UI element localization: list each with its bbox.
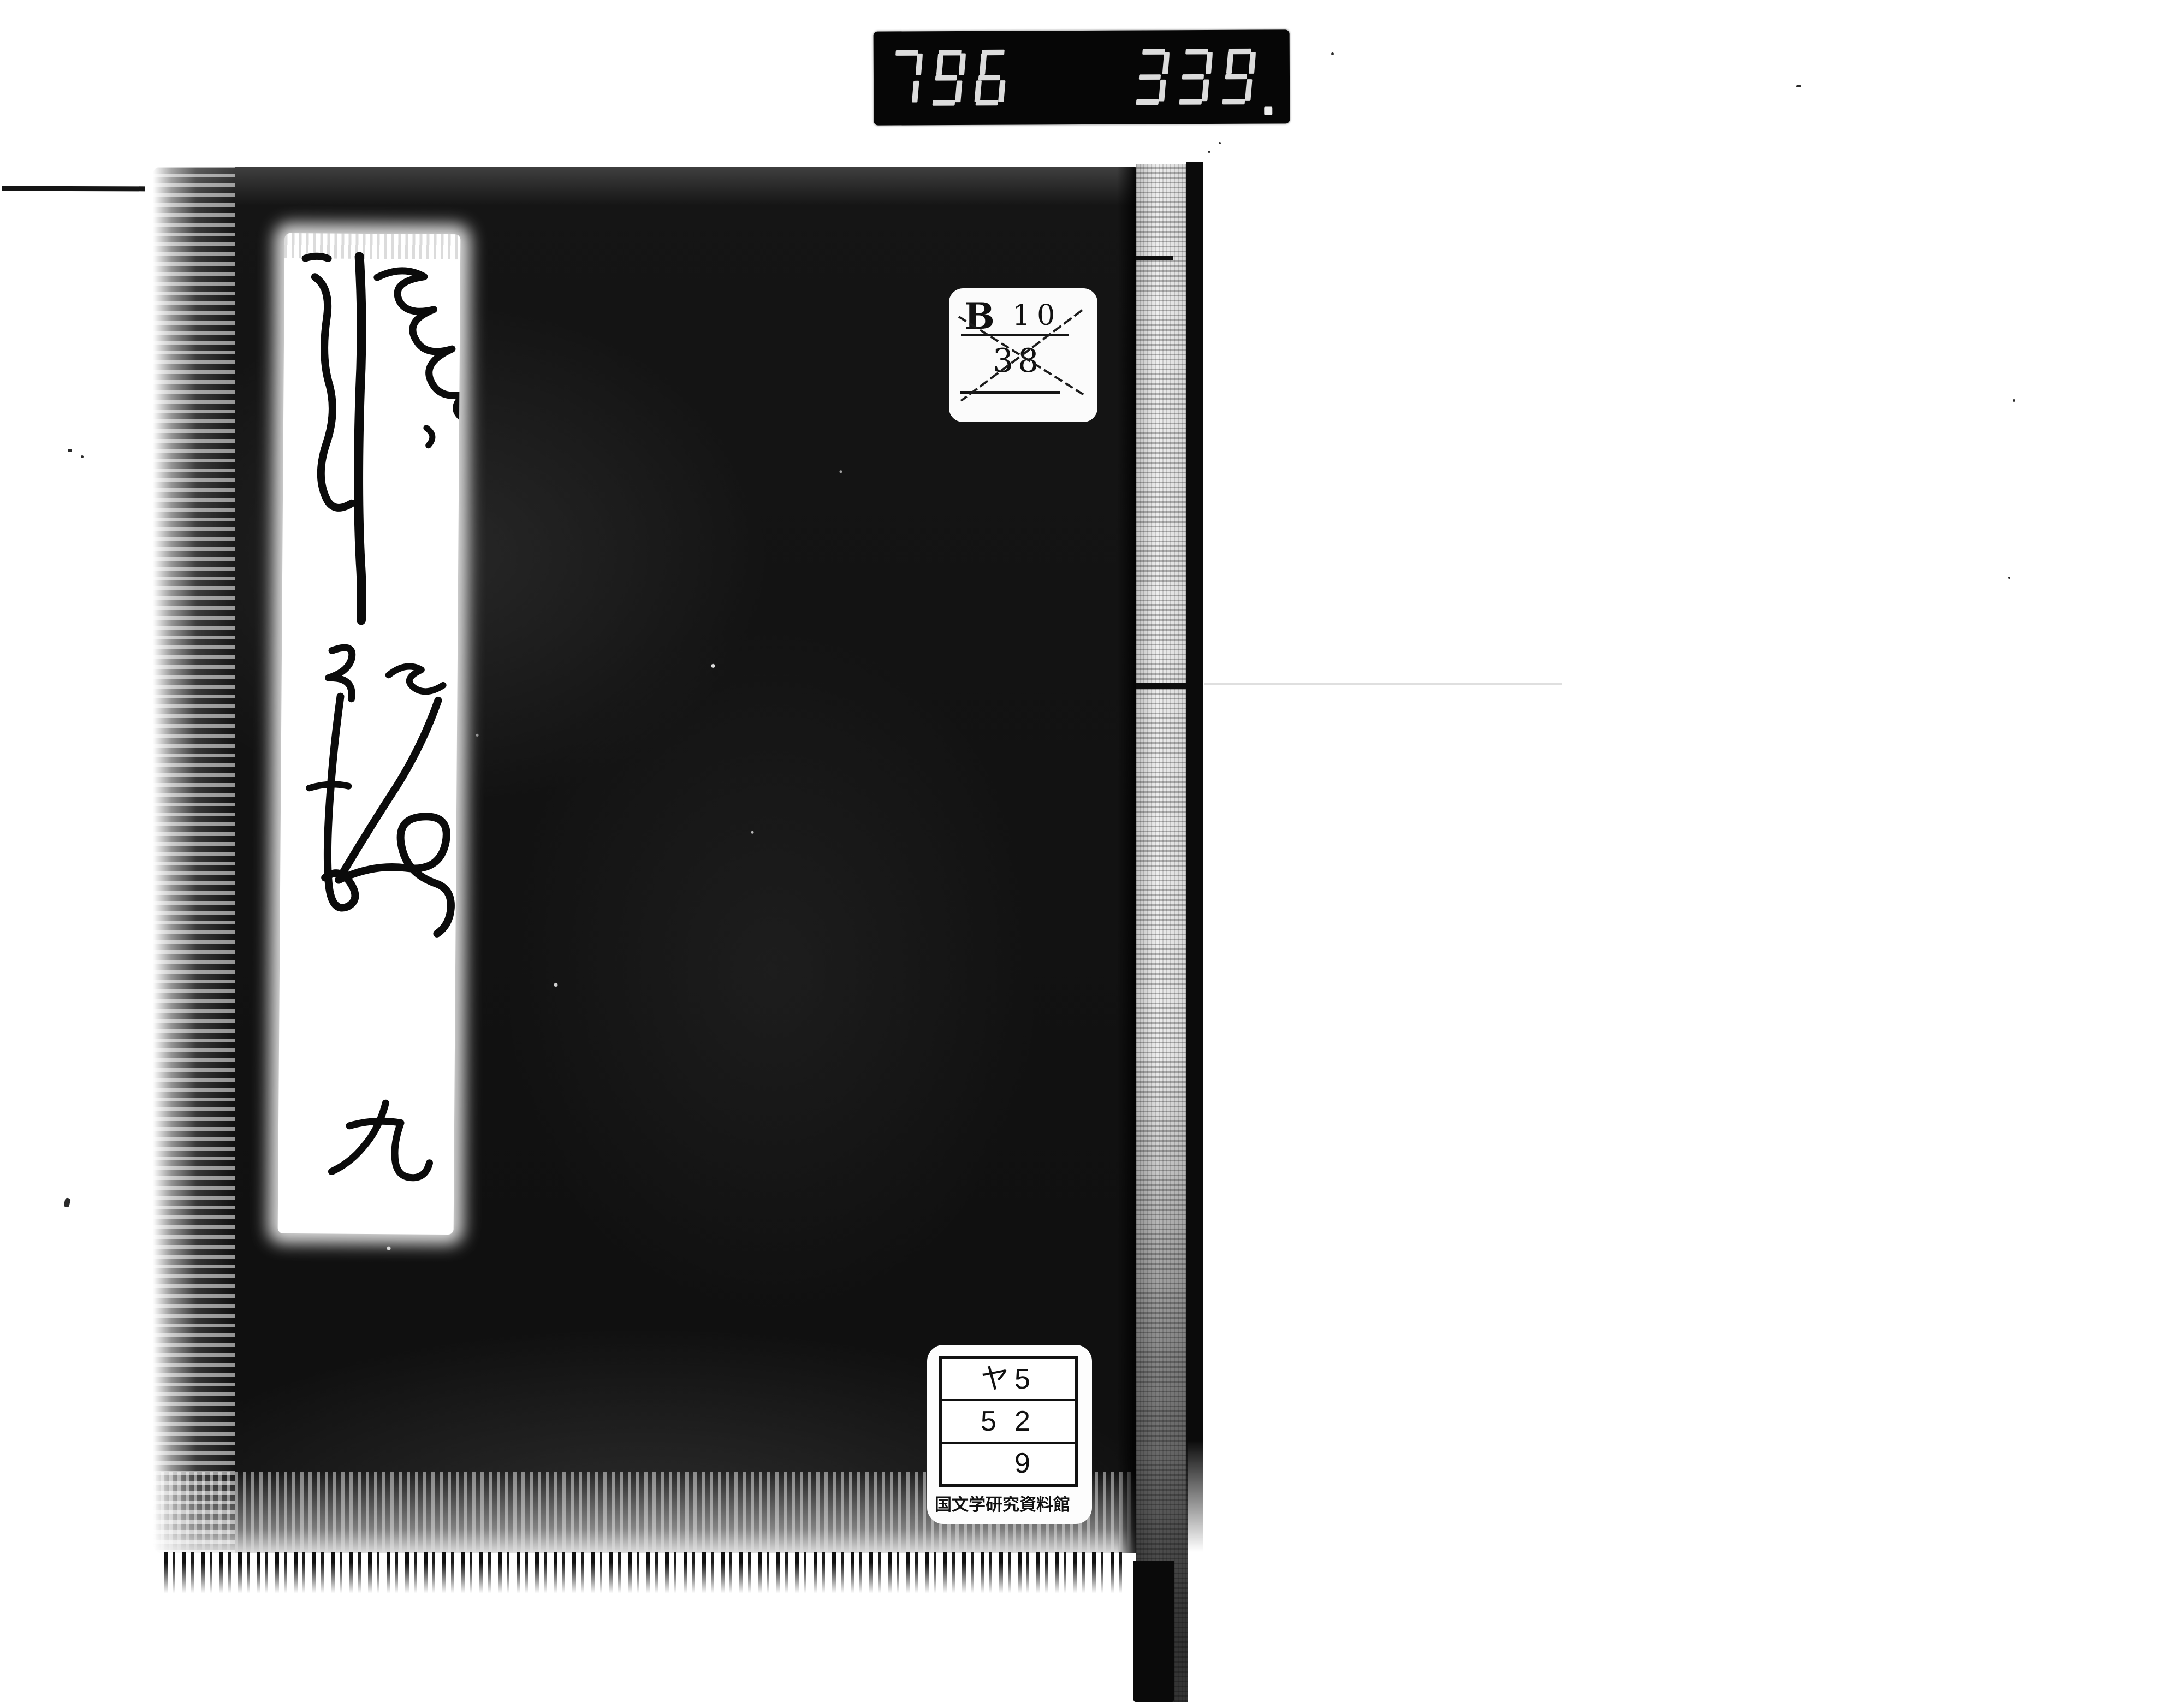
cover-spine-groove [1117, 167, 1136, 1553]
call-number-cell: 5 [981, 1407, 1014, 1436]
scan-hairline [1204, 683, 1562, 685]
call-number-table: ヤ 5 5 2 9 [939, 1356, 1078, 1487]
cross-out-mark [949, 288, 1097, 422]
margin-line [2, 186, 145, 192]
counter-right-digits [1135, 29, 1273, 124]
dust-speck [1796, 85, 1801, 87]
dust-speck [1331, 52, 1334, 55]
counter-digit [888, 45, 923, 111]
call-number-row: 9 [942, 1444, 1075, 1484]
call-number-row: ヤ 5 [942, 1359, 1075, 1401]
institution-name: 国文学研究資料館 [935, 1491, 1070, 1515]
dust-speck [63, 1197, 71, 1208]
counter-decimal-dot [1264, 106, 1272, 115]
cover-top-fade [153, 167, 1136, 216]
frame-counter: 796 339. [874, 29, 1290, 125]
cover-bottom-fringe [164, 1552, 1125, 1596]
title-calligraphy [278, 233, 461, 1235]
book-spine [1136, 164, 1188, 1702]
book-spine-edge [1186, 162, 1203, 1552]
call-number-cell: 9 [1014, 1449, 1030, 1478]
counter-digit [974, 45, 1010, 111]
spine-scratch-mark [1136, 256, 1173, 260]
dust-speck [1208, 151, 1210, 153]
counter-left-digits [888, 31, 1010, 126]
call-number-cell: 5 [1014, 1365, 1030, 1393]
counter-digit [1135, 44, 1170, 110]
call-number-cell: ヤ [981, 1365, 1014, 1393]
binding-tail [1133, 1561, 1174, 1702]
cover-left-fade [153, 167, 235, 1553]
call-number-cell: 2 [1014, 1407, 1030, 1436]
dust-speck [1219, 142, 1221, 144]
title-slip: 姫鏡 九 [278, 233, 461, 1235]
dust-speck [2013, 399, 2015, 402]
call-number-label: ヤ 5 5 2 9 国文学研究資料館 [927, 1345, 1092, 1524]
dust-speck [68, 449, 72, 452]
spine-scratch-mark [1136, 683, 1188, 689]
classification-label: B 10 38 [949, 288, 1097, 422]
counter-digit [1221, 44, 1256, 110]
call-number-row: 5 2 [942, 1401, 1075, 1443]
dust-speck [2008, 577, 2010, 579]
dust-speck [81, 455, 84, 458]
counter-digit [931, 45, 966, 111]
counter-digit [1178, 44, 1213, 110]
microfilm-scan-page: 796 339. 姫鏡 九 [0, 0, 2184, 1702]
